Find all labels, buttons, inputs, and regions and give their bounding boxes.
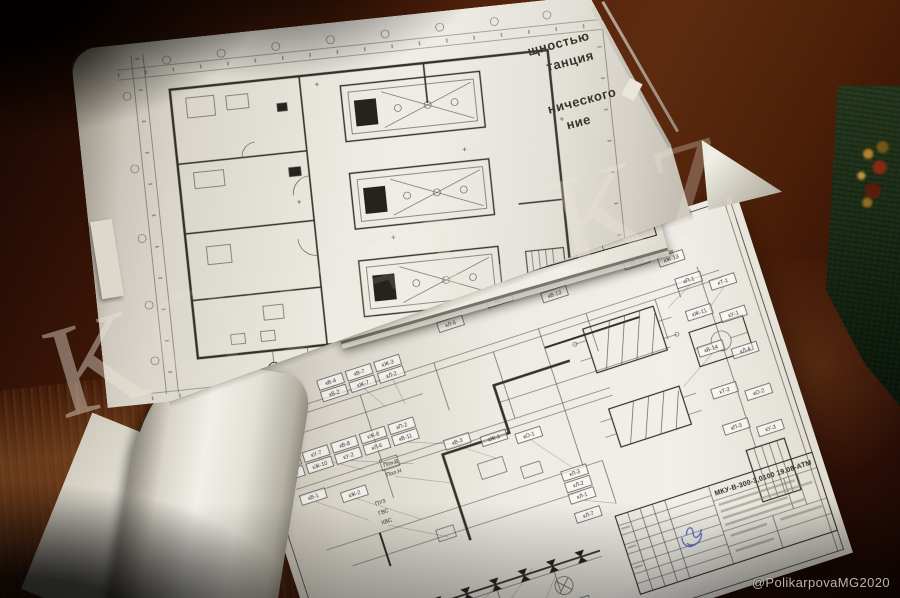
equipment-tag: кЖ-1 (480, 429, 508, 447)
svg-text:ХВС: ХВС (381, 518, 393, 527)
equipment-tag: кЖ-2 (341, 485, 369, 503)
svg-text:Пол.Н: Пол.Н (386, 468, 403, 479)
equipment-tag: кЛ-4 (731, 341, 759, 359)
equipment-tag: кТ-1 (709, 273, 737, 291)
svg-text:ГВС: ГВС (378, 508, 390, 517)
photo-credit: @PolikarpovaMG2020 (752, 575, 890, 590)
equipment-tag: Пол.В (383, 459, 400, 470)
gold-ornament (848, 132, 896, 216)
equipment-tag: кУ-1 (719, 305, 747, 323)
equipment-tag: кО-2 (745, 383, 773, 401)
equipment-tag: ГВС (378, 508, 390, 517)
svg-text:Пол.В: Пол.В (383, 459, 400, 470)
heat-exchanger-block (597, 382, 704, 451)
photo-scene: кВ-4кВ-7кЖ-3кВ-2кЖ-7кЛ-2кЛ-5кД-1кВ-13кВ-… (0, 0, 900, 598)
equipment-tag: кТ-2 (711, 382, 739, 400)
equipment-tag: Пол.Н (386, 468, 403, 479)
equipment-tag: кЖ-11 (685, 304, 713, 322)
heat-exchanger-block (569, 301, 682, 377)
equipment-tag: кВ-1 (299, 488, 327, 506)
equipment-tag: кО-1 (515, 426, 543, 444)
equipment-tag: кУ-3 (757, 419, 785, 437)
valve-manifold (351, 545, 614, 598)
equipment-tag: ХВС (381, 518, 393, 527)
equipment-tag: кЛ-7 (574, 506, 602, 524)
equipment-tag: кП-3 (722, 418, 750, 436)
